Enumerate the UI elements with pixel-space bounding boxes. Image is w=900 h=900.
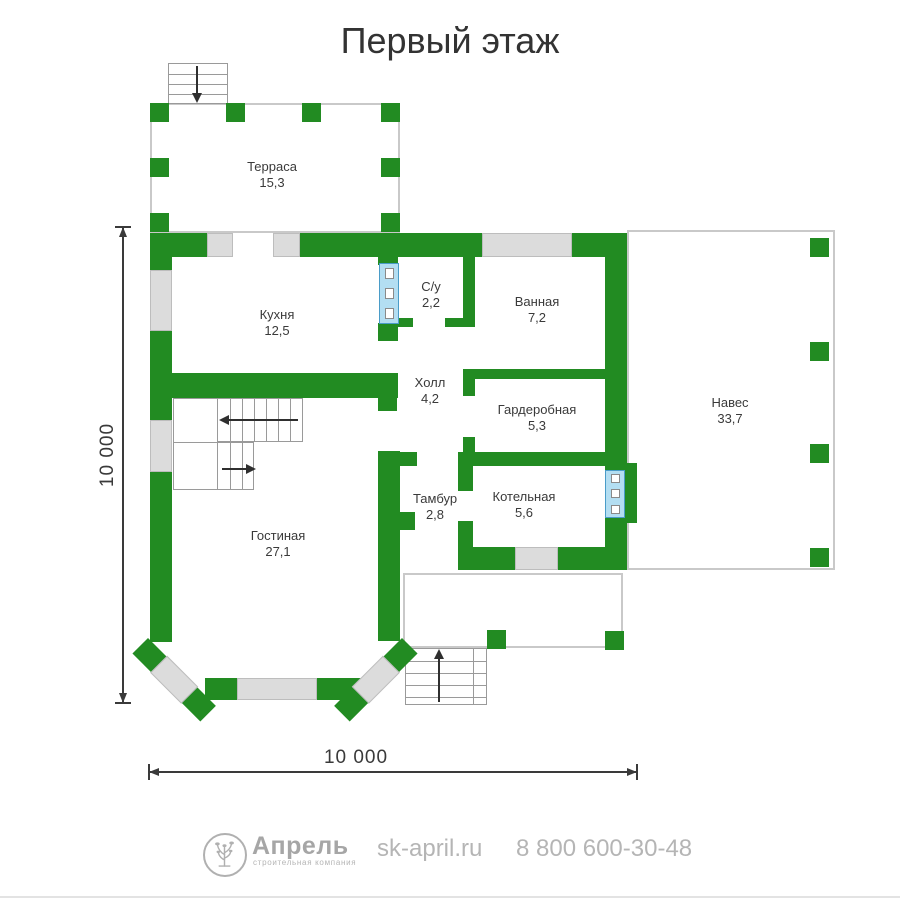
dimension-tick — [636, 764, 638, 780]
stairs-landing — [173, 398, 218, 443]
canopy-post — [810, 342, 829, 361]
wall — [458, 521, 473, 547]
tree-icon — [205, 835, 244, 874]
wall — [458, 452, 608, 466]
wall — [463, 255, 475, 327]
arrow-right-icon — [246, 464, 256, 474]
wall — [463, 437, 475, 453]
window — [352, 656, 400, 704]
room-name: Кухня — [260, 307, 295, 323]
canopy-post — [810, 548, 829, 567]
stair-step — [406, 685, 486, 686]
stairs-landing-lower — [173, 442, 218, 490]
wall — [397, 318, 413, 327]
room-label-wc: С/у 2,2 — [421, 279, 441, 311]
glass-pane — [385, 288, 394, 299]
window — [237, 678, 317, 700]
porch-outline — [403, 573, 623, 648]
room-area: 15,3 — [247, 175, 297, 191]
company-name: Апрель — [252, 832, 349, 861]
room-name: Терраса — [247, 159, 297, 175]
terrace-post — [381, 103, 400, 122]
room-name: Навес — [711, 395, 748, 411]
terrace-post — [381, 158, 400, 177]
room-label-living: Гостиная 27,1 — [251, 528, 306, 560]
wall — [150, 472, 172, 642]
wall — [467, 369, 607, 379]
stairs-up-arrow — [226, 419, 298, 421]
dimension-tick — [115, 226, 131, 228]
wall — [378, 451, 400, 641]
wall — [378, 398, 397, 411]
arrow-up-icon — [119, 227, 127, 237]
dimension-label-horizontal: 10 000 — [324, 747, 388, 769]
wall — [150, 233, 172, 271]
website-link[interactable]: sk-april.ru — [377, 835, 482, 863]
room-area: 2,2 — [421, 295, 441, 311]
page-title: Первый этаж — [341, 20, 560, 62]
wall — [378, 323, 398, 341]
room-name: Котельная — [493, 489, 556, 505]
terrace-post — [150, 213, 169, 232]
room-label-canopy: Навес 33,7 — [711, 395, 748, 427]
glass-pane — [385, 268, 394, 279]
room-area: 12,5 — [260, 323, 295, 339]
stairs-down-arrow — [222, 468, 248, 470]
room-name: Тамбур — [413, 491, 457, 507]
terrace-post — [381, 213, 400, 232]
glass-pane — [611, 489, 620, 498]
arrow-left-icon — [149, 768, 159, 776]
terrace-post — [150, 158, 169, 177]
room-area: 33,7 — [711, 411, 748, 427]
floor-plan: Первый этаж — [0, 0, 900, 900]
terrace-post — [226, 103, 245, 122]
terrace-post — [150, 103, 169, 122]
porch-post — [605, 631, 624, 650]
glass-block-window — [379, 263, 399, 324]
room-label-hall: Холл 4,2 — [415, 375, 446, 407]
stair-step — [406, 673, 486, 674]
room-label-vestibule: Тамбур 2,8 — [413, 491, 457, 523]
room-area: 2,8 — [413, 507, 457, 523]
phone-number[interactable]: 8 800 600-30-48 — [516, 835, 692, 863]
room-area: 4,2 — [415, 391, 446, 407]
canopy-post — [810, 444, 829, 463]
room-label-bathroom: Ванная 7,2 — [515, 294, 560, 326]
window — [207, 233, 233, 257]
room-label-kitchen: Кухня 12,5 — [260, 307, 295, 339]
room-area: 27,1 — [251, 544, 306, 560]
room-name: Гардеробная — [498, 402, 577, 418]
window — [150, 270, 172, 331]
dimension-label-vertical: 10 000 — [97, 423, 119, 487]
dimension-tick — [148, 764, 150, 780]
glass-pane — [385, 308, 394, 319]
window — [482, 233, 572, 257]
company-logo — [203, 833, 247, 877]
dimension-line-vertical — [122, 227, 124, 703]
window — [150, 420, 172, 472]
room-label-terrace: Терраса 15,3 — [247, 159, 297, 191]
porch-stairs — [405, 648, 487, 705]
dimension-line-horizontal — [149, 771, 637, 773]
wall — [458, 466, 473, 491]
stair-step — [242, 443, 243, 489]
wall — [300, 233, 482, 257]
terrace-stairs-arrow — [196, 66, 198, 94]
wall — [463, 369, 475, 396]
stair-step — [169, 84, 227, 85]
room-area: 7,2 — [515, 310, 560, 326]
bay-wall-left — [132, 638, 215, 721]
window — [515, 547, 558, 570]
wall — [625, 463, 637, 523]
arrow-down-icon — [192, 93, 202, 103]
room-name: С/у — [421, 279, 441, 295]
room-name: Гостиная — [251, 528, 306, 544]
room-name: Ванная — [515, 294, 560, 310]
porch-stairs-arrow — [438, 656, 440, 702]
dimension-tick — [115, 702, 131, 704]
room-area: 5,3 — [498, 418, 577, 434]
stair-edge — [473, 649, 474, 704]
company-tagline: строительная компания — [253, 858, 356, 867]
window — [273, 233, 300, 257]
wall — [445, 318, 475, 327]
glass-pane — [611, 505, 620, 514]
terrace-post — [302, 103, 321, 122]
wall — [398, 452, 417, 466]
room-area: 5,6 — [493, 505, 556, 521]
arrow-up-icon — [434, 649, 444, 659]
stair-step — [406, 697, 486, 698]
glass-block-window — [605, 470, 625, 518]
room-name: Холл — [415, 375, 446, 391]
wall — [172, 373, 398, 398]
stair-step — [230, 443, 231, 489]
wall — [605, 233, 627, 570]
stair-step — [169, 74, 227, 75]
glass-pane — [611, 474, 620, 483]
window — [150, 656, 198, 704]
room-label-wardrobe: Гардеробная 5,3 — [498, 402, 577, 434]
footer-divider — [0, 896, 900, 898]
arrow-left-icon — [219, 415, 229, 425]
porch-post — [487, 630, 506, 649]
stair-step — [406, 661, 486, 662]
room-label-boiler: Котельная 5,6 — [493, 489, 556, 521]
canopy-post — [810, 238, 829, 257]
wall — [150, 331, 172, 421]
